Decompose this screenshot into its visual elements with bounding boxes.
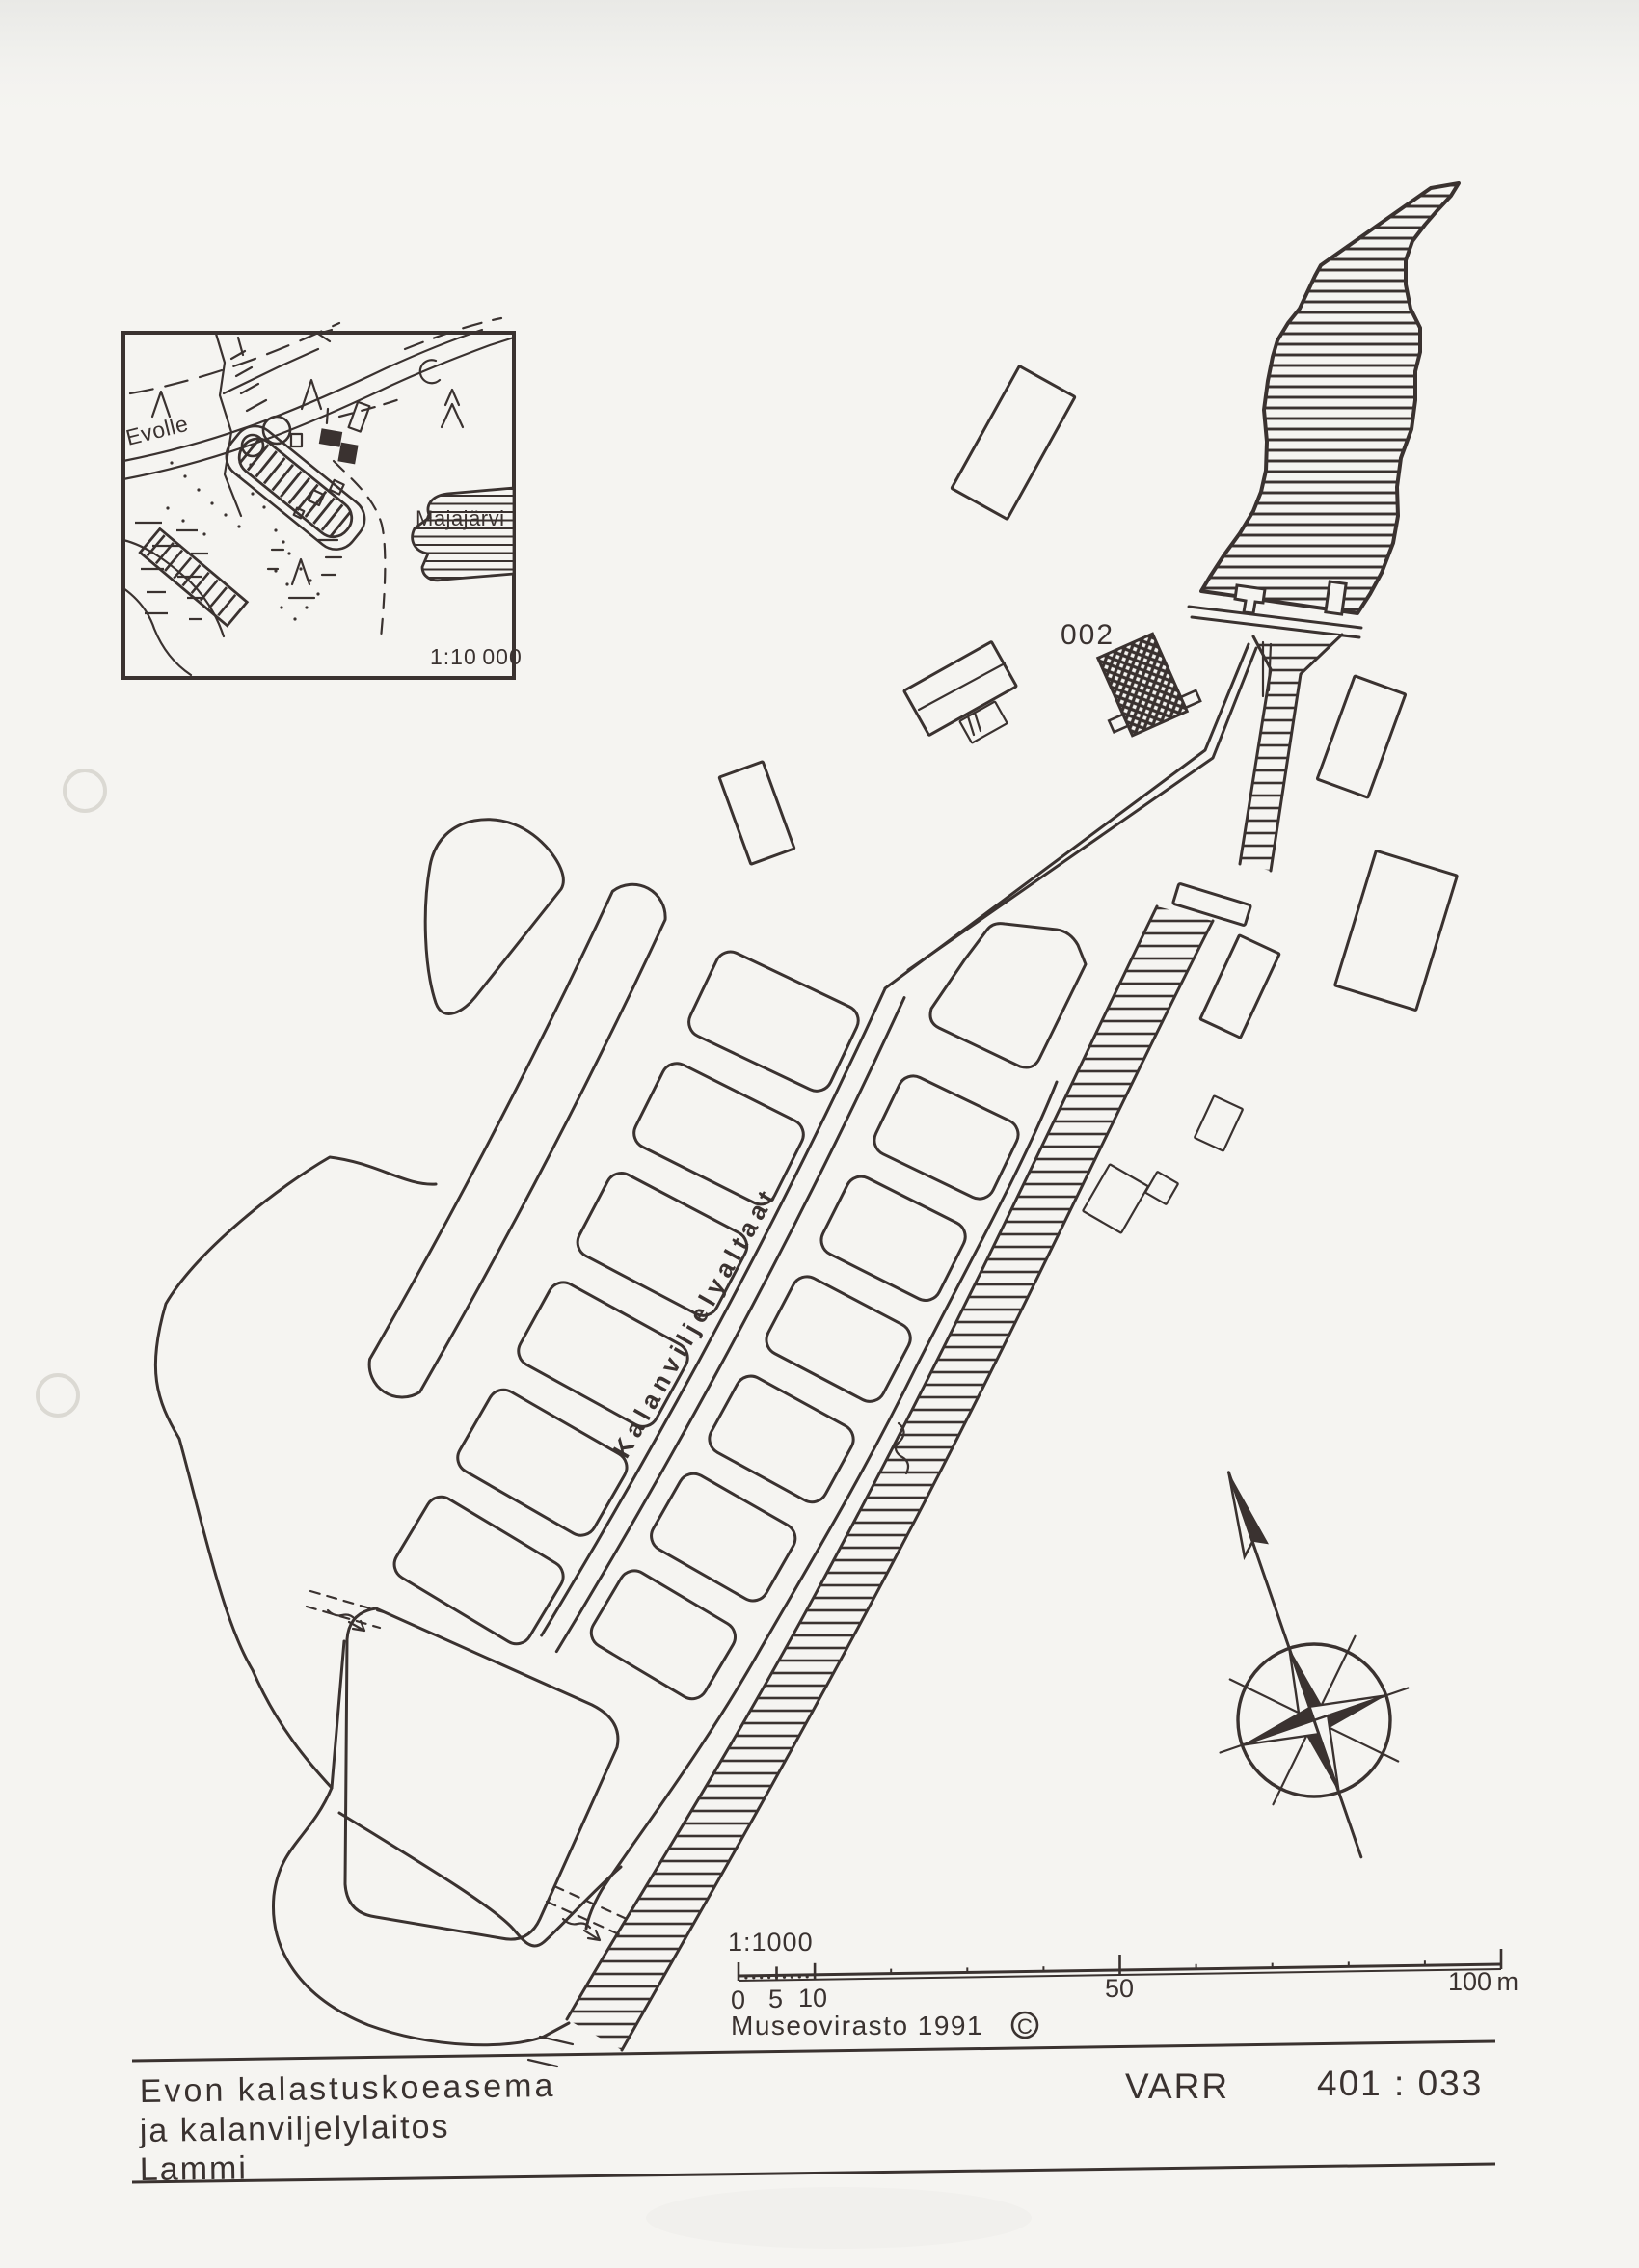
svg-text:Evon kalastuskoeasema: Evon kalastuskoeasema xyxy=(140,2067,556,2110)
svg-text:1:10 000: 1:10 000 xyxy=(430,644,523,669)
svg-text:VARR: VARR xyxy=(1125,2066,1229,2106)
svg-text:50: 50 xyxy=(1105,1974,1134,2003)
svg-text:Majajärvi: Majajärvi xyxy=(416,506,505,530)
svg-text:401 : 033: 401 : 033 xyxy=(1317,2064,1483,2103)
svg-text:5: 5 xyxy=(768,1984,783,2013)
svg-text:ja kalanviljelylaitos: ja kalanviljelylaitos xyxy=(139,2109,450,2150)
svg-text:002: 002 xyxy=(1061,619,1115,651)
svg-text:100 m: 100 m xyxy=(1448,1967,1518,1996)
svg-text:Museovirasto 1991: Museovirasto 1991 xyxy=(731,2011,983,2040)
svg-text:1:1000: 1:1000 xyxy=(728,1928,814,1957)
svg-text:10: 10 xyxy=(798,1984,827,2012)
svg-text:C: C xyxy=(1017,2014,1033,2038)
